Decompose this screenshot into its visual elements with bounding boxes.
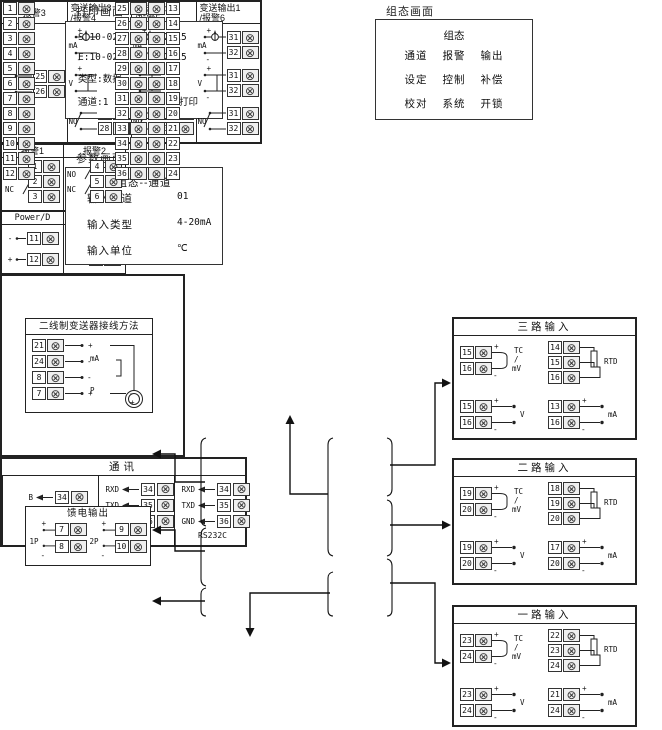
terminal-number: 19 bbox=[460, 541, 474, 554]
tc-mv-symbol: + - TC / mV bbox=[492, 346, 544, 376]
terminal-number: 6 bbox=[3, 77, 17, 90]
two-wire-box: 二线制变送器接线方法 21 + 24 bbox=[25, 318, 153, 413]
comm-signal-label: B bbox=[13, 493, 33, 502]
terminal-number: 18 bbox=[166, 77, 180, 90]
screw-terminal-icon bbox=[148, 92, 165, 105]
terminal-strip-row: 34 22 bbox=[115, 137, 180, 150]
no-label: NO bbox=[198, 117, 207, 126]
terminal-row: 6 bbox=[90, 190, 122, 203]
left-arrow-icon bbox=[35, 493, 53, 502]
screw-terminal-icon bbox=[157, 483, 174, 496]
comm-standard-label: RS232C bbox=[198, 531, 227, 540]
terminal-number: 15 bbox=[460, 400, 474, 413]
terminal-number: 36 bbox=[217, 515, 231, 528]
terminal-strip-row: 27 15 bbox=[115, 32, 180, 45]
terminal-row: 16 bbox=[460, 362, 492, 375]
terminal-number: 13 bbox=[166, 2, 180, 15]
terminal-row: 20 bbox=[460, 503, 492, 516]
terminal-strip-row: 3 bbox=[3, 32, 35, 45]
screw-terminal-icon bbox=[475, 688, 492, 701]
minus-sign: - bbox=[207, 55, 210, 64]
screw-terminal-icon bbox=[242, 84, 259, 97]
input-box-title: 一路输入 bbox=[454, 607, 635, 624]
tc-label: TC bbox=[514, 346, 523, 355]
terminal-row: 23 bbox=[548, 644, 580, 657]
rtd-symbol: RTD bbox=[580, 629, 624, 674]
param-label: 输入单位 bbox=[87, 243, 151, 258]
terminal-row: 20 bbox=[460, 557, 492, 570]
v-label: V bbox=[198, 79, 203, 88]
screw-terminal-icon bbox=[148, 47, 165, 60]
terminal-row: 26 bbox=[33, 85, 65, 98]
terminal-row: 24 bbox=[548, 704, 580, 717]
screw-terminal-icon bbox=[475, 541, 492, 554]
terminal-number: 1 bbox=[3, 2, 17, 15]
terminal-number: 34 bbox=[217, 483, 231, 496]
terminal-number: 14 bbox=[166, 17, 180, 30]
screw-terminal-icon bbox=[71, 491, 88, 504]
plus-sign: + bbox=[494, 630, 499, 639]
terminal-number: 3 bbox=[3, 32, 17, 45]
wire-svg bbox=[65, 387, 85, 400]
terminal-number: 4 bbox=[3, 47, 17, 60]
screw-terminal-icon bbox=[130, 32, 147, 45]
screw-terminal-icon bbox=[475, 400, 492, 413]
feed-output-box: 馈电输出 1P + - 7 8 2P + - bbox=[25, 506, 151, 566]
terminal-number: 20 bbox=[548, 512, 562, 525]
connector-to-input3 bbox=[390, 383, 443, 465]
screw-terminal-icon bbox=[148, 32, 165, 45]
terminal-strip-row: 28 16 bbox=[115, 47, 180, 60]
terminal-number: 15 bbox=[548, 356, 562, 369]
terminal-number: 31 bbox=[227, 69, 241, 82]
screw-terminal-icon bbox=[18, 137, 35, 150]
tc-label: TC bbox=[514, 487, 523, 496]
ma-output-module: + - mA 31 32 bbox=[198, 26, 259, 64]
feed-group-label: 1P bbox=[30, 537, 39, 546]
terminal-number: 9 bbox=[115, 523, 129, 536]
terminal-number: 19 bbox=[166, 92, 180, 105]
terminal-row: 7 bbox=[55, 523, 87, 536]
terminal-number: 21 bbox=[166, 122, 180, 135]
v-symbol: + - V bbox=[492, 688, 544, 718]
screw-terminal-icon bbox=[148, 62, 165, 75]
config-menu-item: 控制 bbox=[443, 72, 466, 87]
terminal-strip-row: 30 18 bbox=[115, 77, 180, 90]
terminal-row: 24 bbox=[460, 704, 492, 717]
terminal-row: 3 bbox=[28, 190, 60, 203]
terminal-strip-row: 25 13 bbox=[115, 2, 180, 15]
comm-signal-label: TXD bbox=[175, 501, 195, 510]
terminal-pair: 17 20 bbox=[548, 541, 580, 570]
wire-svg bbox=[15, 253, 26, 266]
screw-terminal-icon bbox=[242, 122, 259, 135]
param-value: 4-20mA bbox=[177, 217, 211, 232]
v-symbol: + - V bbox=[492, 541, 544, 571]
terminal-row: 23 bbox=[460, 688, 492, 701]
terminal-row: 19 bbox=[460, 487, 492, 500]
wiring-diagram-canvas: 打印画面 组态画面 参数画面 S:10-02-27 11:12:15 E:10-… bbox=[0, 0, 662, 730]
terminal-row: 31 bbox=[227, 31, 259, 44]
screw-terminal-icon bbox=[148, 107, 165, 120]
plus-sign: + bbox=[582, 684, 587, 693]
screw-terminal-icon bbox=[18, 2, 35, 15]
terminal-number: 16 bbox=[548, 416, 562, 429]
screw-terminal-icon bbox=[47, 371, 64, 384]
nc-label: NC bbox=[67, 185, 76, 194]
screw-terminal-icon bbox=[148, 152, 165, 165]
terminal-strip-row: 33 21 bbox=[115, 122, 180, 135]
plus-sign: + bbox=[494, 396, 499, 405]
terminal-number: 16 bbox=[460, 362, 474, 375]
screw-terminal-icon bbox=[563, 629, 580, 642]
terminal-number: 9 bbox=[3, 122, 17, 135]
screw-terminal-icon bbox=[48, 70, 65, 83]
mv-label: mV bbox=[512, 364, 521, 373]
config-menu-item: 通道 bbox=[405, 48, 428, 63]
param-label: 输入类型 bbox=[87, 217, 151, 232]
screw-terminal-icon bbox=[130, 2, 147, 15]
ma-symbol: + - mA bbox=[198, 28, 227, 62]
v-symbol: + - V bbox=[198, 66, 227, 100]
terminal-number: 15 bbox=[460, 346, 474, 359]
terminal-row: 31 bbox=[227, 69, 259, 82]
config-screen-title: 组态画面 bbox=[386, 3, 434, 19]
terminal-number: 12 bbox=[27, 253, 41, 266]
slash-label: / bbox=[514, 643, 519, 652]
connector-to-comm bbox=[250, 593, 330, 629]
config-menu-item-label: 校对 bbox=[405, 98, 428, 110]
terminal-number: 11 bbox=[27, 232, 41, 245]
terminal-number: 27 bbox=[115, 32, 129, 45]
config-menu-item: 开锁 bbox=[481, 96, 504, 111]
screw-terminal-icon bbox=[475, 346, 492, 359]
screw-terminal-icon bbox=[148, 137, 165, 150]
terminal-strip-row: 12 bbox=[3, 167, 35, 180]
config-menu-row: 设定 控制 补偿 bbox=[405, 72, 504, 87]
comm-signal-label: GND bbox=[175, 517, 195, 526]
screw-terminal-icon bbox=[563, 497, 580, 510]
terminal-row: 15 bbox=[460, 346, 492, 359]
screw-terminal-icon bbox=[130, 137, 147, 150]
ma-input-module: 17 20 + - mA bbox=[548, 541, 632, 571]
arrow-up-icon bbox=[286, 415, 295, 424]
terminal-number: 22 bbox=[548, 629, 562, 642]
screw-terminal-icon bbox=[242, 46, 259, 59]
terminal-pair: 7 8 bbox=[55, 523, 87, 553]
polarity-sign: - bbox=[88, 373, 91, 382]
terminal-number: 35 bbox=[217, 499, 231, 512]
screw-terminal-icon bbox=[563, 512, 580, 525]
screw-terminal-icon bbox=[18, 122, 35, 135]
feed-group: 1P + - 7 8 bbox=[30, 523, 87, 563]
screw-terminal-icon bbox=[47, 355, 64, 368]
terminal-number: 35 bbox=[115, 152, 129, 165]
relay-output-module: NO 31 32 bbox=[198, 102, 259, 140]
config-menu-item-label: 补偿 bbox=[481, 74, 504, 86]
connector-to-input1 bbox=[390, 583, 443, 663]
terminal-row: 8 bbox=[55, 540, 87, 553]
plus-sign: + bbox=[102, 519, 107, 528]
v-input-module: 19 20 + - V bbox=[460, 541, 544, 571]
terminal-number: 24 bbox=[460, 650, 474, 663]
left-arrow-icon bbox=[121, 485, 139, 494]
screw-terminal-icon bbox=[130, 523, 147, 536]
terminal-number: 10 bbox=[3, 137, 17, 150]
screw-terminal-icon bbox=[70, 523, 87, 536]
screw-terminal-icon bbox=[242, 31, 259, 44]
ma-symbol: + - mA bbox=[580, 541, 632, 571]
screw-terminal-icon bbox=[563, 644, 580, 657]
screw-terminal-icon bbox=[148, 167, 165, 180]
config-menu-item-label: 报警 bbox=[443, 50, 466, 62]
transmit-title-line1: 变送输出1 bbox=[200, 3, 261, 13]
terminal-pair: 21 24 bbox=[548, 688, 580, 717]
p-label: P bbox=[90, 386, 95, 395]
plus-sign: + bbox=[582, 396, 587, 405]
terminal-row: 23 bbox=[460, 634, 492, 647]
v-label: V bbox=[520, 551, 525, 560]
terminal-number: 23 bbox=[166, 152, 180, 165]
wire-svg bbox=[65, 355, 85, 368]
screw-terminal-icon bbox=[233, 483, 250, 496]
terminal-strip-row: 8 bbox=[3, 107, 35, 120]
config-menu-cells: 设定 控制 补偿 bbox=[405, 72, 504, 87]
terminal-number: 19 bbox=[460, 487, 474, 500]
terminal-number: 31 bbox=[227, 107, 241, 120]
arrow-down-icon bbox=[246, 628, 255, 637]
terminal-row: 19 bbox=[548, 497, 580, 510]
terminal-row: 20 bbox=[548, 512, 580, 525]
plus-sign: + bbox=[494, 483, 499, 492]
terminal-number: 21 bbox=[548, 688, 562, 701]
screw-terminal-icon bbox=[42, 253, 59, 266]
ma-label: mA bbox=[608, 551, 617, 560]
screw-terminal-icon bbox=[475, 503, 492, 516]
terminal-number: 5 bbox=[90, 175, 104, 188]
plus-sign: + bbox=[494, 342, 499, 351]
terminal-number: 20 bbox=[460, 557, 474, 570]
screw-terminal-icon bbox=[47, 339, 64, 352]
terminal-number: 3 bbox=[28, 190, 42, 203]
terminal-pair: 31 32 bbox=[227, 31, 259, 59]
terminal-number: 5 bbox=[3, 62, 17, 75]
plus-sign: + bbox=[494, 537, 499, 546]
minus-sign: - bbox=[102, 551, 105, 560]
feed-group: 2P + - 9 10 bbox=[90, 523, 147, 563]
two-wire-rows: 21 + 24 - 8 bbox=[32, 339, 93, 400]
terminal-number: 34 bbox=[115, 137, 129, 150]
screw-terminal-icon bbox=[130, 107, 147, 120]
plus-sign: + bbox=[207, 64, 212, 73]
screw-terminal-icon bbox=[18, 17, 35, 30]
screw-terminal-icon bbox=[130, 17, 147, 30]
v-output-module: + - V 31 32 bbox=[198, 64, 259, 102]
minus-sign: - bbox=[494, 566, 497, 575]
rtd-symbol: RTD bbox=[580, 341, 624, 386]
screw-terminal-icon bbox=[48, 85, 65, 98]
terminal-number: 2 bbox=[3, 17, 17, 30]
screw-terminal-icon bbox=[18, 32, 35, 45]
config-menu-item: 设定 bbox=[405, 72, 428, 87]
input-box-title: 二路输入 bbox=[454, 460, 635, 477]
terminal-row: 25 bbox=[33, 70, 65, 83]
param-row: 输入类型 4-20mA bbox=[74, 217, 214, 232]
screw-terminal-icon bbox=[563, 557, 580, 570]
screw-terminal-icon bbox=[157, 499, 174, 512]
terminal-row: 8 - bbox=[32, 371, 93, 384]
terminal-number: 25 bbox=[115, 2, 129, 15]
comm-signal-row: GND 36 bbox=[175, 515, 250, 528]
terminal-number: 32 bbox=[227, 122, 241, 135]
terminal-number: 11 bbox=[3, 152, 17, 165]
relay-symbol: NO bbox=[69, 104, 98, 138]
nc-label: NC bbox=[5, 185, 14, 194]
terminal-strip-row: 11 bbox=[3, 152, 35, 165]
terminal-number: 12 bbox=[3, 167, 17, 180]
terminal-pair: 31 32 bbox=[227, 107, 259, 135]
terminal-number: 10 bbox=[115, 540, 129, 553]
screw-terminal-icon bbox=[130, 152, 147, 165]
terminal-row: 16 bbox=[460, 416, 492, 429]
screw-terminal-icon bbox=[475, 650, 492, 663]
print-button-label: 打印 bbox=[179, 94, 198, 108]
terminal-row: 16 bbox=[548, 371, 580, 384]
v-input-module: 15 16 + - V bbox=[460, 400, 544, 430]
terminal-row: 20 bbox=[548, 557, 580, 570]
comm-signal-row: TXD 35 bbox=[175, 499, 250, 512]
power-terminal-row: - 11 bbox=[6, 232, 63, 245]
rtd-label: RTD bbox=[604, 498, 618, 507]
plus-sign: + bbox=[42, 519, 47, 528]
screw-terminal-icon bbox=[18, 77, 35, 90]
power-terminal-row: + 12 bbox=[6, 253, 63, 266]
terminal-strip-row: 10 bbox=[3, 137, 35, 150]
screw-terminal-icon bbox=[563, 482, 580, 495]
config-menu-item-label: 通道 bbox=[405, 50, 428, 62]
config-menu-cells: 校对 系统 开锁 bbox=[405, 96, 504, 111]
terminal-number: 23 bbox=[548, 644, 562, 657]
terminal-number: 8 bbox=[3, 107, 17, 120]
terminal-stack: 14 15 16 bbox=[548, 341, 580, 384]
terminal-pair: 23 24 bbox=[460, 688, 492, 717]
comm-signal-label: RXD bbox=[175, 485, 195, 494]
rtd-module: 18 19 20 RTD bbox=[548, 482, 624, 527]
minus-sign: - bbox=[78, 55, 81, 64]
terminal-strip-row: 29 17 bbox=[115, 62, 180, 75]
minus-sign: - bbox=[494, 512, 497, 521]
terminal-strip-row: 31 19 bbox=[115, 92, 180, 105]
terminal-number: 13 bbox=[548, 400, 562, 413]
terminal-number: 24 bbox=[166, 167, 180, 180]
terminal-strip-left: 1 2 3 4 5 6 7 8 bbox=[3, 2, 35, 180]
terminal-strip-row: 2 bbox=[3, 17, 35, 30]
rtd-label: RTD bbox=[604, 645, 618, 654]
config-menu-row: 校对 系统 开锁 bbox=[405, 96, 504, 111]
terminal-strip-row: 5 bbox=[3, 62, 35, 75]
terminal-number: 7 bbox=[32, 387, 46, 400]
comm-title: 通讯 bbox=[2, 459, 245, 476]
config-menu-cells: 通道 报警 输出 bbox=[405, 48, 504, 63]
comm-signal-row: RXD 34 bbox=[99, 483, 174, 496]
left-arrow-icon bbox=[197, 485, 215, 494]
terminal-row: 15 bbox=[548, 356, 580, 369]
tc-mv-symbol: + - TC / mV bbox=[492, 487, 544, 517]
terminal-number: 31 bbox=[227, 31, 241, 44]
plus-sign: + bbox=[207, 26, 212, 35]
screw-terminal-icon bbox=[148, 122, 165, 135]
screw-terminal-icon bbox=[18, 167, 35, 180]
mv-label: mV bbox=[512, 652, 521, 661]
rtd-module: 22 23 24 RTD bbox=[548, 629, 624, 674]
screw-terminal-icon bbox=[130, 540, 147, 553]
input-box: 一路输入 23 24 + - TC bbox=[452, 605, 637, 727]
screw-terminal-icon bbox=[70, 540, 87, 553]
screw-terminal-icon bbox=[43, 190, 60, 203]
screw-terminal-icon bbox=[148, 77, 165, 90]
tc-mv-symbol: + - TC / mV bbox=[492, 634, 544, 664]
param-value: ℃ bbox=[177, 243, 188, 258]
config-menu-item-label: 输出 bbox=[481, 50, 504, 62]
terminal-number: 16 bbox=[166, 47, 180, 60]
v-label: V bbox=[520, 410, 525, 419]
v-input-module: 23 24 + - V bbox=[460, 688, 544, 718]
polarity-sign: - bbox=[6, 234, 14, 243]
left-arrow-icon bbox=[197, 501, 215, 510]
terminal-pair: 25 26 bbox=[33, 70, 65, 98]
comm-signal-row: RXD 34 bbox=[175, 483, 250, 496]
terminal-strip-row: 35 23 bbox=[115, 152, 180, 165]
terminal-number: 8 bbox=[55, 540, 69, 553]
terminal-row: 9 bbox=[115, 523, 147, 536]
screw-terminal-icon bbox=[475, 362, 492, 375]
screw-terminal-icon bbox=[563, 341, 580, 354]
no-label: NO bbox=[67, 170, 76, 179]
param-value: 01 bbox=[177, 191, 188, 206]
feed-group-label: 2P bbox=[90, 537, 99, 546]
v-symbol: + - V bbox=[492, 400, 544, 430]
terminal-number: 36 bbox=[115, 167, 129, 180]
comm-section-rows: RXD 34 TXD 35 GND bbox=[175, 481, 250, 529]
left-arrow-icon bbox=[197, 517, 215, 526]
plus-sign: + bbox=[78, 26, 83, 35]
input-boxes: 三路输入 15 16 + - TC bbox=[452, 317, 637, 727]
terminal-number: 19 bbox=[548, 497, 562, 510]
config-menu-item-label: 控制 bbox=[443, 74, 466, 86]
screw-terminal-icon bbox=[563, 400, 580, 413]
config-menu: 通道 报警 输出 设定 控制 补偿 bbox=[405, 48, 504, 111]
terminal-row: 24 bbox=[460, 650, 492, 663]
minus-sign: - bbox=[78, 93, 81, 102]
tc-mv-module: 19 20 + - TC / mV bbox=[460, 487, 544, 517]
ma-label: mA bbox=[608, 698, 617, 707]
arrow-left-icon bbox=[152, 597, 161, 606]
terminal-row: 15 bbox=[460, 400, 492, 413]
v-label: V bbox=[69, 79, 74, 88]
screw-terminal-icon bbox=[157, 515, 174, 528]
terminal-row: 21 + bbox=[32, 339, 93, 352]
terminal-number: 26 bbox=[33, 85, 47, 98]
terminal-row: 13 bbox=[548, 400, 580, 413]
screw-terminal-icon bbox=[242, 107, 259, 120]
power-column-body: - 11 + 12 bbox=[2, 225, 63, 273]
screw-terminal-icon bbox=[18, 152, 35, 165]
terminal-number: 17 bbox=[548, 541, 562, 554]
terminal-number: 32 bbox=[115, 107, 129, 120]
terminal-pair: 15 16 bbox=[460, 346, 492, 375]
ma-label: mA bbox=[198, 41, 207, 50]
terminal-number: 33 bbox=[115, 122, 129, 135]
